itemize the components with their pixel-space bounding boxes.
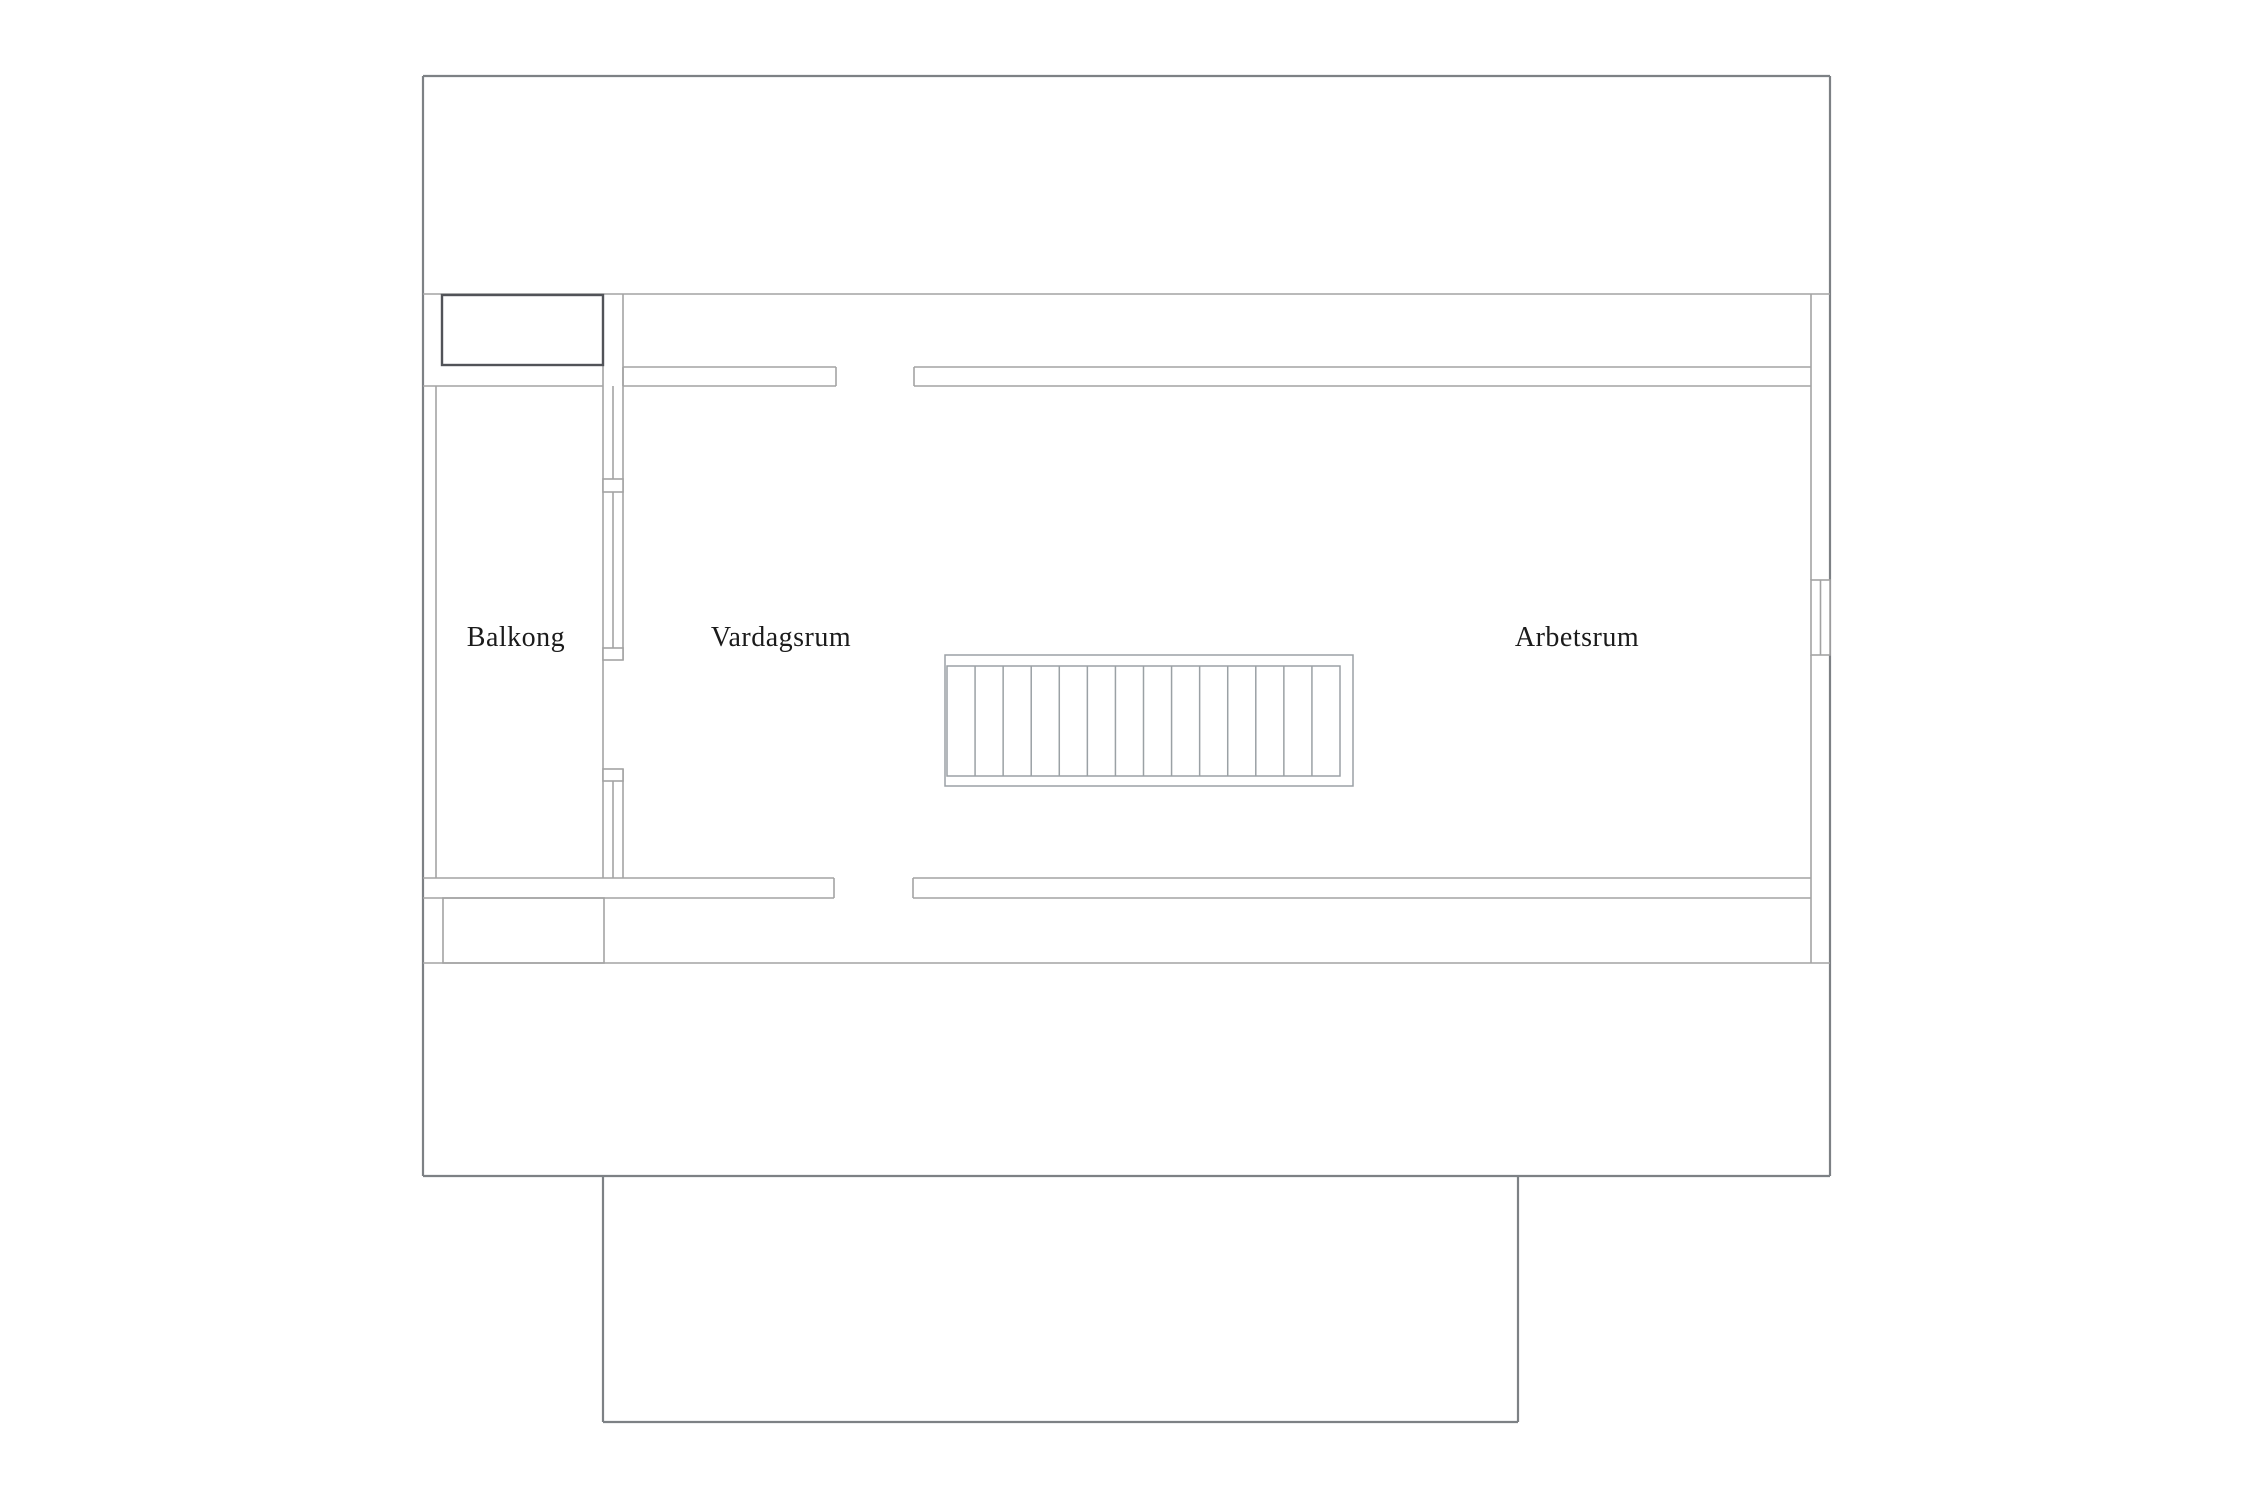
staircase bbox=[945, 655, 1353, 786]
room-label-vardagsrum: Vardagsrum bbox=[711, 622, 851, 653]
balcony-divider-wall bbox=[603, 294, 623, 878]
right-wall bbox=[1811, 294, 1830, 963]
divider-mullion-3 bbox=[603, 769, 623, 781]
floor-plan-page: Balkong Vardagsrum Arbetsrum bbox=[0, 0, 2250, 1500]
staircase-treads bbox=[975, 666, 1312, 776]
room-label-arbetsrum: Arbetsrum bbox=[1515, 622, 1639, 653]
bottom-wall-band bbox=[423, 878, 1811, 898]
chimney-bottom-rect bbox=[443, 898, 604, 963]
top-wall-band bbox=[423, 367, 1811, 386]
room-label-balkong: Balkong bbox=[467, 622, 565, 653]
lower-extension bbox=[603, 1176, 1518, 1422]
right-wall-window bbox=[1811, 580, 1830, 655]
room-labels: Balkong Vardagsrum Arbetsrum bbox=[467, 622, 1639, 653]
floor-plan-drawing: Balkong Vardagsrum Arbetsrum bbox=[0, 0, 2250, 1500]
divider-mullion-2 bbox=[603, 648, 623, 660]
chimney-top-rect bbox=[442, 295, 603, 365]
staircase-outline bbox=[945, 655, 1353, 786]
divider-mullion-1 bbox=[603, 479, 623, 492]
